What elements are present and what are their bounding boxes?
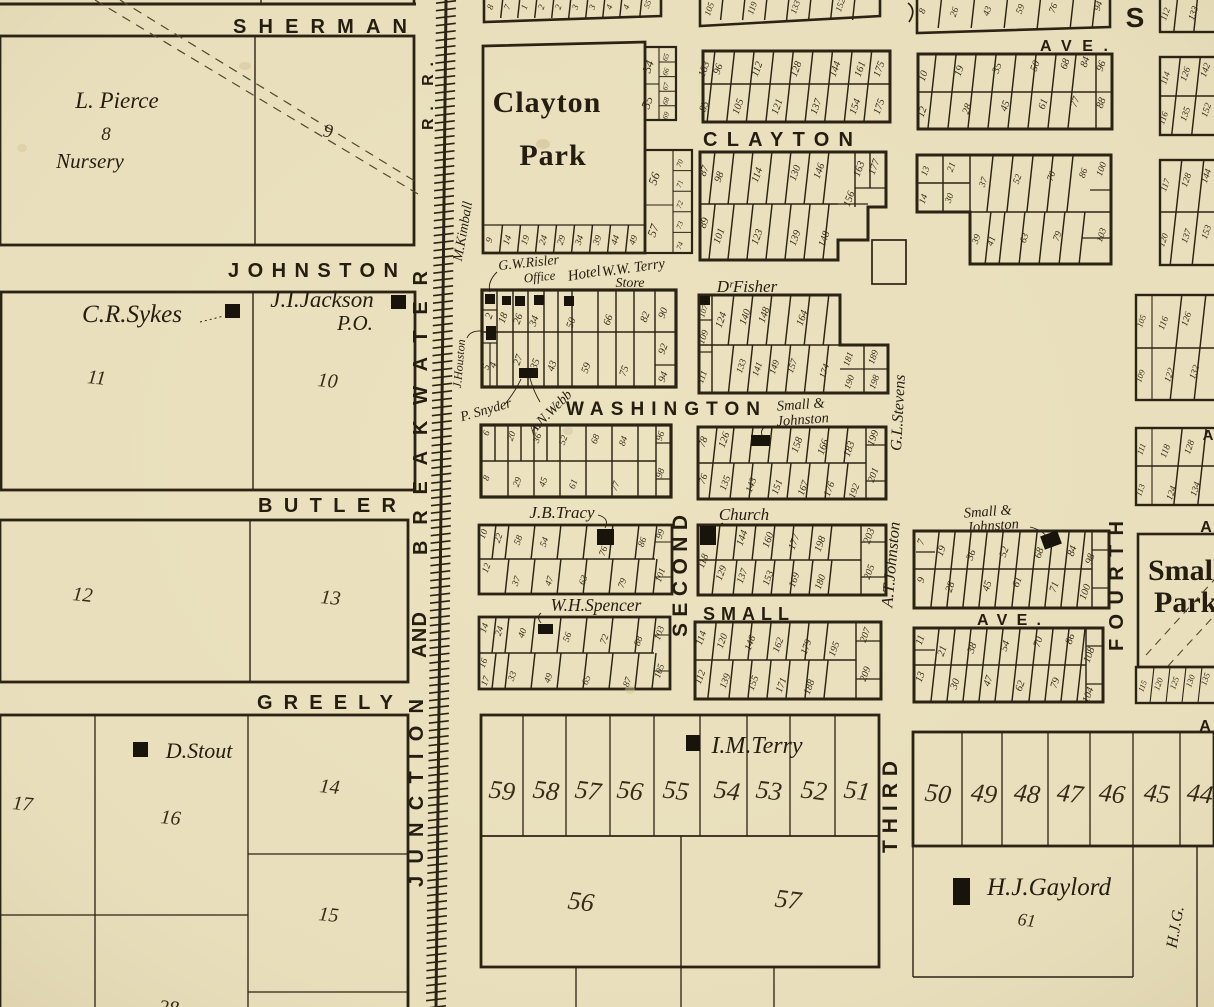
svg-text:8: 8 bbox=[101, 124, 111, 145]
svg-text:14: 14 bbox=[319, 775, 341, 799]
svg-text:11: 11 bbox=[86, 366, 107, 390]
svg-text:12: 12 bbox=[72, 583, 94, 607]
svg-text:17: 17 bbox=[12, 792, 35, 816]
svg-text:10: 10 bbox=[317, 369, 339, 393]
svg-text:A: A bbox=[1203, 427, 1214, 444]
svg-text:C.R.Sykes: C.R.Sykes bbox=[82, 301, 182, 328]
svg-text:55: 55 bbox=[661, 775, 690, 807]
svg-text:58: 58 bbox=[531, 775, 560, 807]
svg-text:46: 46 bbox=[1097, 778, 1126, 810]
svg-text:61: 61 bbox=[1017, 909, 1037, 931]
svg-text:A: A bbox=[1199, 718, 1213, 735]
svg-text:Clayton: Clayton bbox=[493, 86, 602, 119]
svg-text:44: 44 bbox=[1185, 778, 1214, 810]
svg-text:P.O.: P.O. bbox=[336, 311, 373, 335]
svg-text:54: 54 bbox=[712, 775, 741, 807]
svg-text:56: 56 bbox=[615, 775, 644, 807]
svg-text:L. Pierce: L. Pierce bbox=[74, 88, 158, 113]
svg-text:Small: Small bbox=[1148, 554, 1214, 587]
svg-text:THIRD: THIRD bbox=[879, 759, 902, 853]
svg-text:15: 15 bbox=[318, 903, 340, 927]
svg-text:53: 53 bbox=[754, 775, 783, 807]
svg-text:49: 49 bbox=[969, 778, 998, 810]
svg-text:H.J.Gaylord: H.J.Gaylord bbox=[986, 874, 1112, 901]
svg-text:Park: Park bbox=[1154, 586, 1214, 619]
svg-text:13: 13 bbox=[320, 586, 342, 610]
svg-text:48: 48 bbox=[1012, 778, 1041, 810]
svg-text:56: 56 bbox=[566, 886, 595, 918]
svg-text:51: 51 bbox=[842, 775, 871, 807]
svg-text:Church: Church bbox=[719, 505, 769, 524]
svg-text:Park: Park bbox=[519, 139, 586, 172]
svg-text:28: 28 bbox=[158, 996, 180, 1007]
svg-text:57: 57 bbox=[573, 775, 603, 807]
svg-text:52: 52 bbox=[799, 775, 828, 807]
svg-text:47: 47 bbox=[1055, 778, 1085, 810]
svg-text:AND: AND bbox=[409, 610, 431, 658]
svg-text:45: 45 bbox=[1142, 778, 1171, 810]
svg-text:D.Stout: D.Stout bbox=[165, 738, 234, 763]
svg-text:Store: Store bbox=[615, 276, 644, 291]
svg-text:50: 50 bbox=[923, 778, 952, 810]
svg-text:J.I.Jackson: J.I.Jackson bbox=[270, 287, 373, 312]
svg-text:WASHINGTON: WASHINGTON bbox=[566, 399, 762, 420]
svg-text:DʳFisher: DʳFisher bbox=[716, 277, 778, 296]
svg-text:59: 59 bbox=[487, 775, 516, 807]
svg-text:57: 57 bbox=[773, 884, 803, 916]
svg-text:I.M.Terry: I.M.Terry bbox=[710, 733, 802, 759]
svg-text:J.B.Tracy: J.B.Tracy bbox=[529, 503, 595, 522]
svg-text:S: S bbox=[1126, 2, 1147, 33]
svg-text:W.H.Spencer: W.H.Spencer bbox=[551, 595, 642, 615]
svg-text:16: 16 bbox=[160, 806, 182, 830]
svg-text:Nursery: Nursery bbox=[55, 149, 124, 173]
